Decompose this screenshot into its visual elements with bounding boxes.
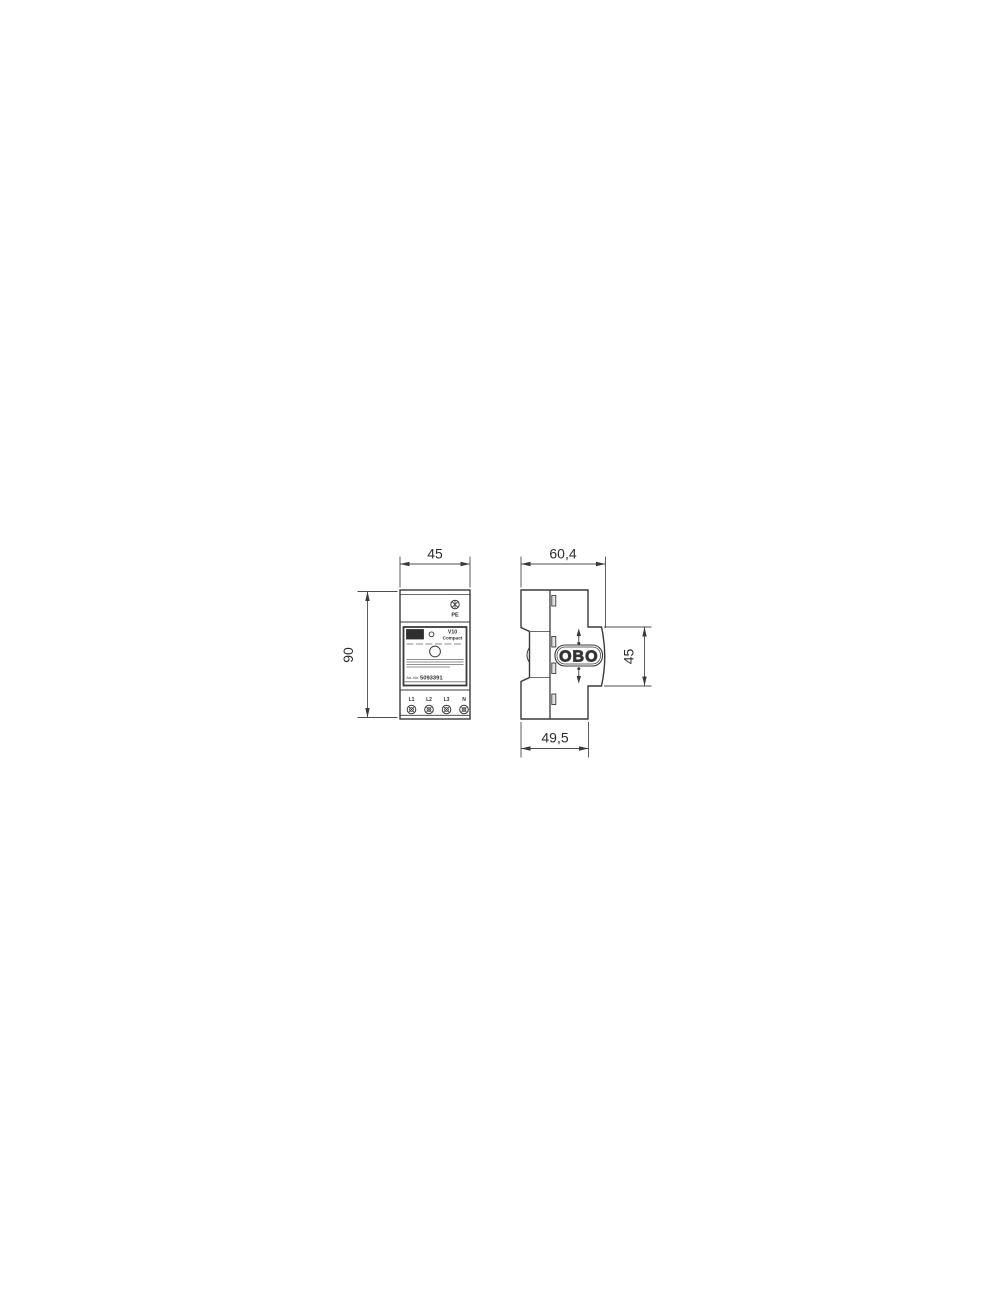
dim-text-side-width-bottom: 49,5 [541, 730, 568, 746]
dim-text-side-width-top: 60,4 [549, 546, 576, 562]
side-logo-plate: OBO [555, 645, 603, 666]
pe-label: PE [451, 613, 459, 619]
vent-slot-icon [552, 694, 556, 705]
side-view: OBO [521, 590, 605, 719]
vent-slot-icon [552, 663, 556, 674]
side-logo-text: OBO [559, 648, 598, 665]
terminal-label-l1: L1 [409, 697, 415, 703]
terminal-label-l2: L2 [426, 697, 432, 703]
product-name-line2: Compact [443, 636, 463, 641]
article-number-prefix: Art.-No. [407, 676, 419, 680]
dim-text-front-width: 45 [427, 546, 443, 562]
article-number: 5093391 [420, 676, 443, 682]
page: PE OBO V10 Compact Art.-No. 5093391 L1 L… [0, 0, 1000, 1300]
terminal-label-n: N [462, 697, 466, 703]
dim-text-front-height: 90 [340, 647, 356, 663]
terminal-label-l3: L3 [444, 697, 450, 703]
vent-slot-icon [552, 637, 556, 648]
dimension-side-module-height: 45 [604, 627, 652, 686]
vent-slot-icon [552, 596, 556, 607]
dimension-front-width: 45 [400, 546, 470, 588]
brand-logo-text: OBO [408, 633, 422, 639]
dimension-front-height: 90 [340, 592, 398, 718]
dim-text-side-module-height: 45 [621, 649, 637, 665]
dimension-side-width-bottom: 49,5 [521, 722, 589, 758]
front-view: PE OBO V10 Compact Art.-No. 5093391 L1 L… [400, 590, 470, 719]
dimension-drawing: PE OBO V10 Compact Art.-No. 5093391 L1 L… [0, 0, 1000, 1300]
